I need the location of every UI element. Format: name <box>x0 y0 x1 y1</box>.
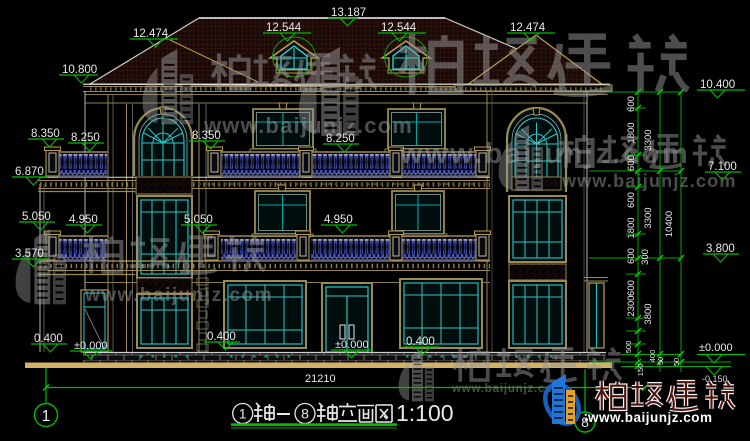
svg-text:4.950: 4.950 <box>324 214 353 226</box>
svg-text:1: 1 <box>239 406 247 422</box>
svg-text:-0.150: -0.150 <box>702 374 728 384</box>
svg-text:10.400: 10.400 <box>700 79 735 91</box>
svg-text:150: 150 <box>636 364 645 377</box>
svg-text:3.570: 3.570 <box>15 248 44 260</box>
svg-text:2300: 2300 <box>626 295 637 316</box>
svg-text:5.050: 5.050 <box>22 211 51 223</box>
svg-text:600: 600 <box>626 96 637 112</box>
svg-text:3300: 3300 <box>643 207 654 228</box>
svg-text:1800: 1800 <box>626 122 637 143</box>
svg-text:±0.000: ±0.000 <box>699 342 733 354</box>
svg-text:50: 50 <box>672 358 681 366</box>
svg-text:10400: 10400 <box>664 211 675 237</box>
svg-text:∶www.baijunjz.com: ∶www.baijunjz.com <box>584 410 713 425</box>
svg-text:3800: 3800 <box>643 303 654 324</box>
svg-text:6.870: 6.870 <box>15 166 44 178</box>
svg-text:600: 600 <box>626 192 637 208</box>
svg-text:13.187: 13.187 <box>331 7 366 19</box>
svg-text:8: 8 <box>301 406 309 422</box>
svg-text:7.100: 7.100 <box>708 161 737 173</box>
svg-text:0.400: 0.400 <box>207 331 236 343</box>
svg-text:5.050: 5.050 <box>184 214 213 226</box>
svg-text:8.350: 8.350 <box>192 130 221 142</box>
svg-text:8.350: 8.350 <box>31 128 60 140</box>
svg-text:0.400: 0.400 <box>34 333 63 345</box>
svg-text:12.544: 12.544 <box>381 22 417 34</box>
svg-text:600: 600 <box>626 248 637 264</box>
svg-text:12.474: 12.474 <box>510 22 546 34</box>
svg-text:600: 600 <box>626 280 637 296</box>
svg-text:12.474: 12.474 <box>133 28 169 40</box>
svg-text:50: 50 <box>656 357 665 365</box>
svg-text:3.800: 3.800 <box>706 243 735 255</box>
svg-text:10.800: 10.800 <box>62 64 97 76</box>
svg-text:8.250: 8.250 <box>326 133 355 145</box>
svg-text:0.400: 0.400 <box>406 336 435 348</box>
svg-text:21210: 21210 <box>305 373 336 385</box>
svg-text:300: 300 <box>640 249 651 265</box>
svg-text:1800: 1800 <box>626 217 637 238</box>
svg-text:600: 600 <box>626 155 637 171</box>
svg-text:500: 500 <box>624 341 633 354</box>
svg-text:8.250: 8.250 <box>71 132 100 144</box>
svg-text:3300: 3300 <box>643 129 654 150</box>
svg-text:www.baijunjz.com: www.baijunjz.com <box>561 171 737 191</box>
svg-text:4.950: 4.950 <box>69 214 98 226</box>
svg-text:12.544: 12.544 <box>266 22 302 34</box>
svg-text:1: 1 <box>42 408 51 425</box>
svg-text:±0.000: ±0.000 <box>74 340 108 352</box>
svg-text:www.baijunjz.com: www.baijunjz.com <box>84 285 273 306</box>
svg-text:1:100: 1:100 <box>396 400 454 426</box>
svg-text:±0.000: ±0.000 <box>335 339 369 351</box>
